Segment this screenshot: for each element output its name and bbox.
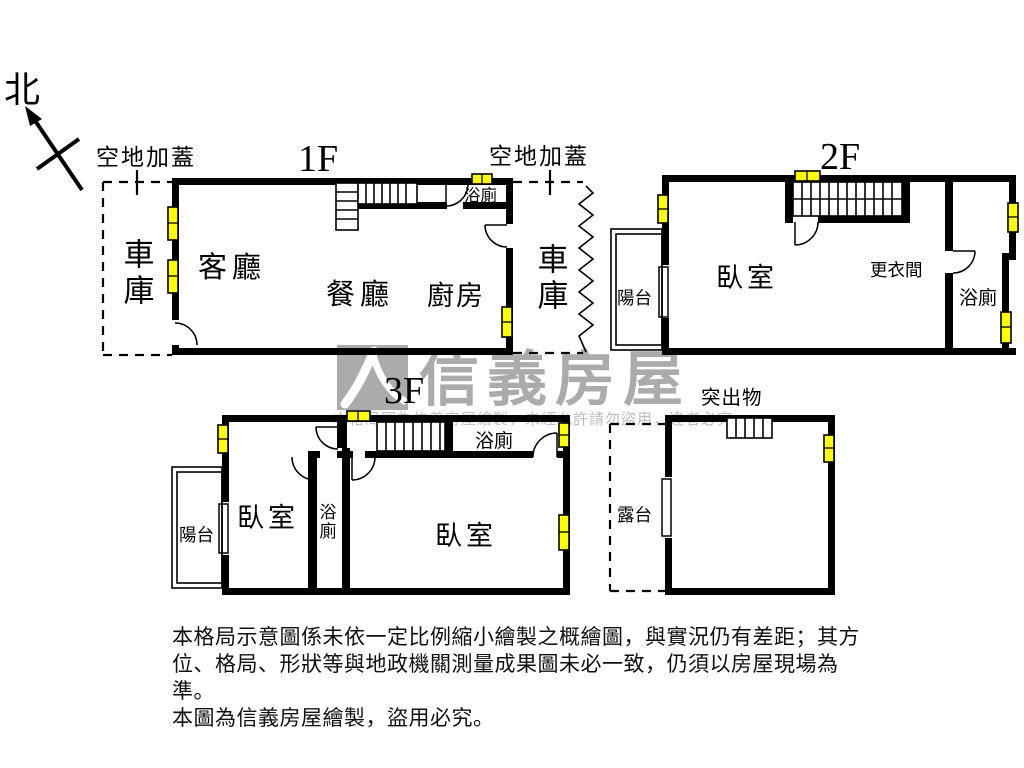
window-icon bbox=[472, 174, 492, 184]
window-icon bbox=[1008, 203, 1018, 232]
door-arc-icon bbox=[175, 323, 197, 345]
window-icon bbox=[824, 435, 834, 462]
window-icon bbox=[168, 207, 178, 240]
door-arc-icon bbox=[533, 433, 557, 457]
window-icon bbox=[795, 171, 820, 181]
floor2-plan: 2F bbox=[611, 136, 1018, 355]
north-label: 北 bbox=[4, 70, 40, 110]
bedroom-3f-left-label: 臥室 bbox=[237, 503, 299, 533]
terrace-area: 露台 bbox=[610, 424, 665, 591]
protrusion-stairs bbox=[727, 418, 772, 438]
protrusion-walls bbox=[665, 415, 835, 595]
floor3-title: 3F bbox=[384, 370, 424, 412]
disclaimer-line3: 本圖為信義房屋繪製，盜用必究。 bbox=[172, 705, 872, 732]
sliding-door-icon bbox=[659, 267, 668, 317]
floor3-stairs bbox=[377, 422, 445, 451]
floorplan-page: 信義房屋 本格局圖為信義房屋繪製，未經允許請勿盜用，違者必究 北 1F 空地加蓋… bbox=[0, 0, 1024, 768]
floor2-stairs bbox=[793, 182, 902, 216]
sliding-door-icon bbox=[662, 479, 671, 536]
window-icon bbox=[502, 307, 512, 337]
disclaimer-text: 本格局示意圖係未依一定比例縮小繪製之概繪圖，與實況仍有差距；其方 位、格局、形狀… bbox=[172, 624, 872, 732]
dining-room-label: 餐廳 bbox=[326, 278, 394, 311]
window-icon bbox=[559, 515, 569, 550]
living-room-label: 客廳 bbox=[198, 251, 266, 284]
window-icon bbox=[168, 260, 178, 293]
open-air-right-label: 空地加蓋 bbox=[489, 144, 589, 169]
balcony-2f-label: 陽台 bbox=[617, 288, 652, 308]
door-arc-icon bbox=[352, 457, 375, 480]
bath-3f-mid-label: 浴廁 bbox=[317, 503, 337, 541]
north-arrow-shaft bbox=[36, 122, 82, 190]
protrusion-title: 突出物 bbox=[701, 387, 763, 409]
floor1-plan: 1F 空地加蓋 空地加蓋 車庫 bbox=[96, 138, 593, 355]
garage-left-area: 車庫 bbox=[103, 170, 172, 355]
door-arc-icon bbox=[795, 222, 818, 245]
garage-right-area: 車庫 bbox=[513, 170, 593, 353]
disclaimer-line1: 本格局示意圖係未依一定比例縮小繪製之概繪圖，與實況仍有差距；其方 bbox=[172, 624, 872, 651]
bath-1f-label: 浴廁 bbox=[464, 185, 497, 205]
fence-zigzag-icon bbox=[579, 186, 593, 352]
watermark-brand: 信義房屋 bbox=[419, 346, 691, 413]
disclaimer-line2: 位、格局、形狀等與地政機關測量成果圖未必一致，仍須以房屋現場為準。 bbox=[172, 651, 872, 705]
window-icon bbox=[218, 425, 228, 453]
dressing-room-label: 更衣間 bbox=[870, 260, 923, 280]
kitchen-label: 廚房 bbox=[427, 281, 485, 311]
floor1-title: 1F bbox=[298, 138, 338, 180]
north-arrow: 北 bbox=[4, 70, 82, 190]
sliding-door-icon bbox=[219, 504, 228, 553]
door-arc-icon bbox=[485, 225, 507, 247]
window-icon bbox=[347, 411, 370, 421]
window-icon bbox=[1001, 312, 1011, 343]
bedroom-3f-right-label: 臥室 bbox=[435, 521, 497, 551]
garage-right-label: 車庫 bbox=[533, 243, 569, 315]
window-icon bbox=[559, 423, 569, 447]
north-arrow-cross bbox=[37, 139, 79, 169]
door-arc-icon bbox=[316, 427, 338, 449]
bedroom-2f-label: 臥室 bbox=[716, 263, 778, 293]
door-arc-icon bbox=[953, 251, 975, 273]
bath-3f-top-label: 浴廁 bbox=[475, 429, 513, 452]
floor2-title: 2F bbox=[820, 136, 860, 178]
balcony-3f-label: 陽台 bbox=[179, 525, 214, 545]
window-icon bbox=[658, 195, 668, 223]
terrace-label: 露台 bbox=[617, 505, 652, 525]
open-air-left-label: 空地加蓋 bbox=[96, 145, 196, 170]
bath-2f-label: 浴廁 bbox=[959, 286, 997, 309]
garage-left-label: 車庫 bbox=[119, 238, 155, 310]
